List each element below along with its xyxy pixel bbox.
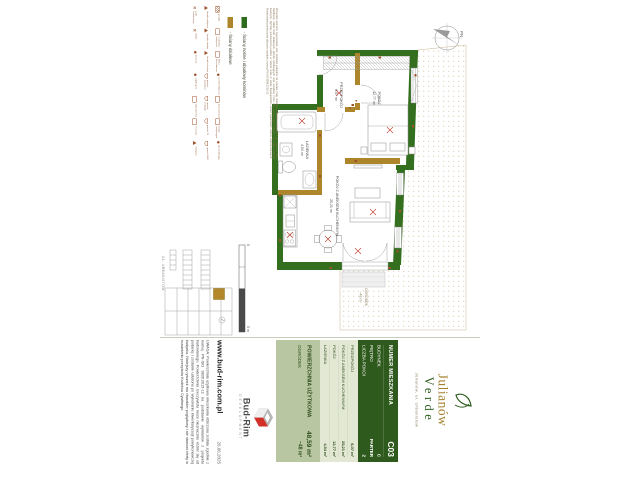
building-label: BUDYNEK [375,345,383,367]
garden-area: ~48 m² [359,292,363,304]
furniture [277,105,415,253]
website-url: www.bud-rim.com.pl [216,340,225,413]
radiator-icon [216,6,220,13]
brand-logo: Julianów Verde Julianów, ul. Urbanistów [415,345,474,455]
room-area-hall: 6,07 m² [334,89,338,102]
legend-item: czujnik dymu [192,74,197,97]
door-icon [216,96,220,103]
room-label-bath: ŁAZIENKA [305,141,309,160]
switch-icon [205,6,209,10]
room-count-value: 2 [360,454,368,457]
legend-item: gniazdo pojedyncze [204,74,209,97]
switch-icon [205,29,209,33]
table-row: PRZEDPOKÓJ6,07 m² [348,345,357,457]
summary-panel: POWIERZCHNIA UŻYTKOWA 48,59 m² OGRÓDEK ~… [276,340,320,462]
balcony-door [342,243,388,270]
highlighted-unit [214,289,225,300]
bell-icon [194,51,197,54]
table-row: POKÓJ12,77 m² [330,345,339,457]
room-area-living: 25,21 m² [329,199,333,214]
legend-item: łącznik schodowy [204,51,209,74]
box-icon [216,29,220,36]
scale-end: 5 m [246,326,250,332]
legend-item: dzwonek [192,51,197,74]
legend-item: termostat [192,119,197,142]
room-count-label: LICZBA POKOI [360,345,368,376]
legend-item: wideodomofon [192,96,197,119]
legend-item: kinkiet [192,29,197,52]
street-label: UL. URBANISTÓW [161,256,166,291]
light-point-icon [193,6,197,10]
switch-icon [205,51,209,55]
socket-icon [205,96,209,101]
disclaimer-text: UWAGA: Powierzchnia użytkowa mieszkania … [180,340,210,464]
partition-wall-label: - Ściany działowe [228,32,233,65]
building-value: C [375,454,383,457]
bearing-wall-swatch [242,17,248,28]
legend-item: tablica teletechniczna [215,51,220,74]
leaf-icon [453,388,473,412]
room-list-panel: PRZEDPOKÓJ6,07 m² POKÓJ Z ANEKSEM KUCHEN… [320,340,358,462]
document-date: 26.06.2025 [217,441,222,464]
partition-wall-swatch [228,17,234,28]
room-label-living: POKÓJ Z ANEKSEM KUCHENNYM [335,176,340,236]
intercom-icon [193,96,197,103]
budrim-cube-icon [254,407,274,429]
riser-icon [217,141,220,144]
compass-label: PN [459,31,464,37]
socket-icon [205,74,209,79]
scale-start: 0 [246,244,250,246]
legend-item: rozdzielnica elektryczna [215,29,220,52]
legend-item: punkt oświetleniowy [192,6,197,29]
garden-area-value: ~48 m² [295,441,304,457]
box-icon [216,51,220,58]
usable-area-label: POWIERZCHNIA UŻYTKOWA [304,345,314,417]
brand-name-line1: Julianów [436,345,451,455]
thermostat-icon [193,119,197,126]
legend-item: kratka wentylacyjna [215,119,220,142]
bearing-wall-label: - Ściany nośne i obudowy kominów [242,32,247,98]
dot-icon [217,74,220,77]
developer-logo: Bud-Rim DEVELOPMENT [238,380,274,455]
room-label-bedroom: POKÓJ [377,92,382,105]
room-area-bedroom: 12,77 m² [372,91,376,106]
scale-bar: 0 5 m [239,244,250,332]
legend-item: gniazdo podwójne [204,96,209,119]
floor-value: PARTER [368,439,376,457]
legend-item: łącznik pojedynczy [204,6,209,29]
vent-icon [216,119,220,126]
fan-icon [193,141,197,145]
legend-item: gniazdo TV [204,119,209,142]
legend-wall-type-partition: - Ściany działowe [227,17,234,167]
developer-sub: DEVELOPMENT [238,380,242,455]
legend-item: łącznik podwójny [204,29,209,52]
brand-name-line2: Verde [422,345,436,455]
smoke-detector-icon [194,74,197,77]
room-area-bath: 4,54 m² [300,144,304,157]
document-page: PN [0,0,640,480]
legend-wall-type-bearing: - Ściany nośne i obudowy kominów [241,17,248,167]
table-row: ŁAZIENKA4,54 m² [321,345,330,457]
legend-symbols: grzejnik rozdzielnica elektryczna tablic… [186,6,221,172]
legend-item: pion instalacyjny [215,141,220,164]
rotated-card: PN [160,0,480,480]
legend-item: puszka elektryczna [215,74,220,97]
room-label-hall: PRZEDPOKÓJ [339,82,344,108]
legend-item: grzejnik [215,6,220,29]
section-divider [160,337,480,338]
floor-label: PIĘTRO [368,345,376,362]
tv-socket-icon [205,119,209,124]
site-plan: UL. URBANISTÓW [161,250,232,335]
legend-item: drzwi wejściowe [215,96,220,119]
sconce-icon [193,29,197,33]
terrace [342,272,385,287]
website-row: www.bud-rim.com.pl 26.06.2025 [216,340,225,464]
usable-area-value: 48,59 m² [304,431,314,457]
legend-item: gniazdo RJ45 [204,141,209,164]
developer-name: Bud-Rim [242,380,252,455]
legend-note: Wszystkie elementy wyposażenia oraz aran… [250,8,278,159]
unit-number-value: C03 [386,441,396,457]
legend-item: wentylator [192,141,197,164]
wardrobe [324,57,410,70]
garden-area-label: OGRÓDEK [295,345,304,368]
table-row: POKÓJ Z ANEKSEM KUCHENNYM25,21 m² [339,345,348,457]
unit-number-label: NUMER MIESZKANIA [388,345,394,405]
unit-info-panel: NUMER MIESZKANIA C03 BUDYNEK C PIĘTRO PA… [358,340,398,462]
rj45-socket-icon [205,141,209,146]
brand-tagline: Julianów, ul. Urbanistów [415,345,420,455]
